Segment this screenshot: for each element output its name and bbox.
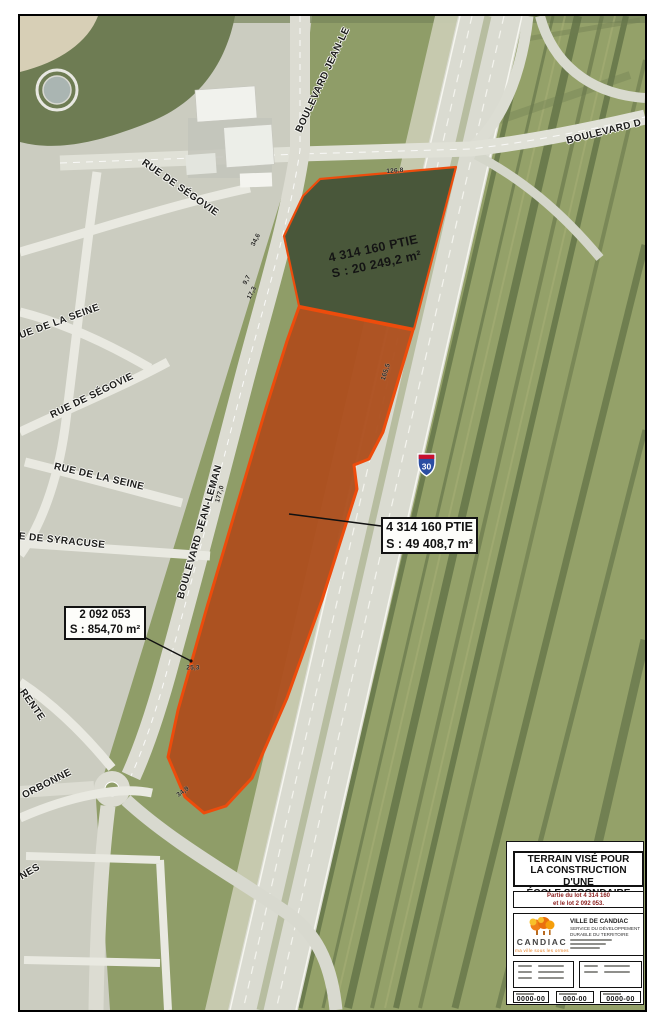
info-box-right <box>579 961 642 988</box>
dimension-label: 25,3 <box>186 665 199 672</box>
candiac-logo: CANDIAC ma ville sous les ormes <box>514 914 570 955</box>
logo-box: CANDIAC ma ville sous les ormes VILLE DE… <box>513 913 644 956</box>
logo-tagline: ma ville sous les ormes <box>515 948 569 953</box>
parcel-small-lot: 2 092 053 <box>66 608 144 623</box>
logo-name: CANDIAC <box>517 937 567 947</box>
sheet-number: 0000-00 <box>603 996 638 1003</box>
dimension-label: 126,8 <box>386 167 404 175</box>
file-number-box: 0000-00 <box>513 991 549 1003</box>
address-redacted <box>570 947 600 949</box>
org-dept2: DURABLE DU TERRITOIRE <box>570 932 643 937</box>
sheet-number-box: 0000-00 <box>600 991 641 1003</box>
title-line: TERRAIN VISÉ POUR <box>515 854 642 865</box>
lot-line: Partie du lot 4 314 160 <box>514 893 643 901</box>
title-block: TERRAIN VISÉ POUR LA CONSTRUCTION D'UNE … <box>506 841 644 1005</box>
address-redacted <box>570 943 606 945</box>
highway-shield-icon: 30 <box>417 453 436 477</box>
plan-number-box: 000-00 <box>556 991 594 1003</box>
title-line: LA CONSTRUCTION D'UNE <box>515 865 642 888</box>
plan-number: 000-00 <box>559 996 591 1003</box>
parcel-small-area: S : 854,70 m² <box>66 623 144 638</box>
org-dept: SERVICE DU DÉVELOPPEMENT <box>570 926 643 931</box>
address-redacted <box>570 939 612 941</box>
lot-reference-box: Partie du lot 4 314 160 et le lot 2 092 … <box>513 891 644 908</box>
parcel-main-area: S : 49 408,7 m² <box>383 536 476 552</box>
org-info: VILLE DE CANDIAC SERVICE DU DÉVELOPPEMEN… <box>570 914 643 955</box>
lot-line: et le lot 2 092 053. <box>514 901 643 909</box>
candiac-trees-icon <box>527 916 557 936</box>
parcel-small-label: 2 092 053 S : 854,70 m² <box>64 606 146 640</box>
map-sheet: BOULEVARD JEAN-LE BOULEVARD D RUE DE SÉG… <box>0 0 663 1024</box>
pond <box>43 76 71 104</box>
org-name: VILLE DE CANDIAC <box>570 918 643 925</box>
info-box-left <box>513 961 574 988</box>
parcel-main-label: 4 314 160 PTIE S : 49 408,7 m² <box>381 517 478 554</box>
parcel-main-lot: 4 314 160 PTIE <box>383 519 476 535</box>
svg-text:30: 30 <box>422 462 432 472</box>
file-number: 0000-00 <box>516 996 546 1003</box>
title-box: TERRAIN VISÉ POUR LA CONSTRUCTION D'UNE … <box>513 851 644 887</box>
map-frame: BOULEVARD JEAN-LE BOULEVARD D RUE DE SÉG… <box>18 14 647 1012</box>
